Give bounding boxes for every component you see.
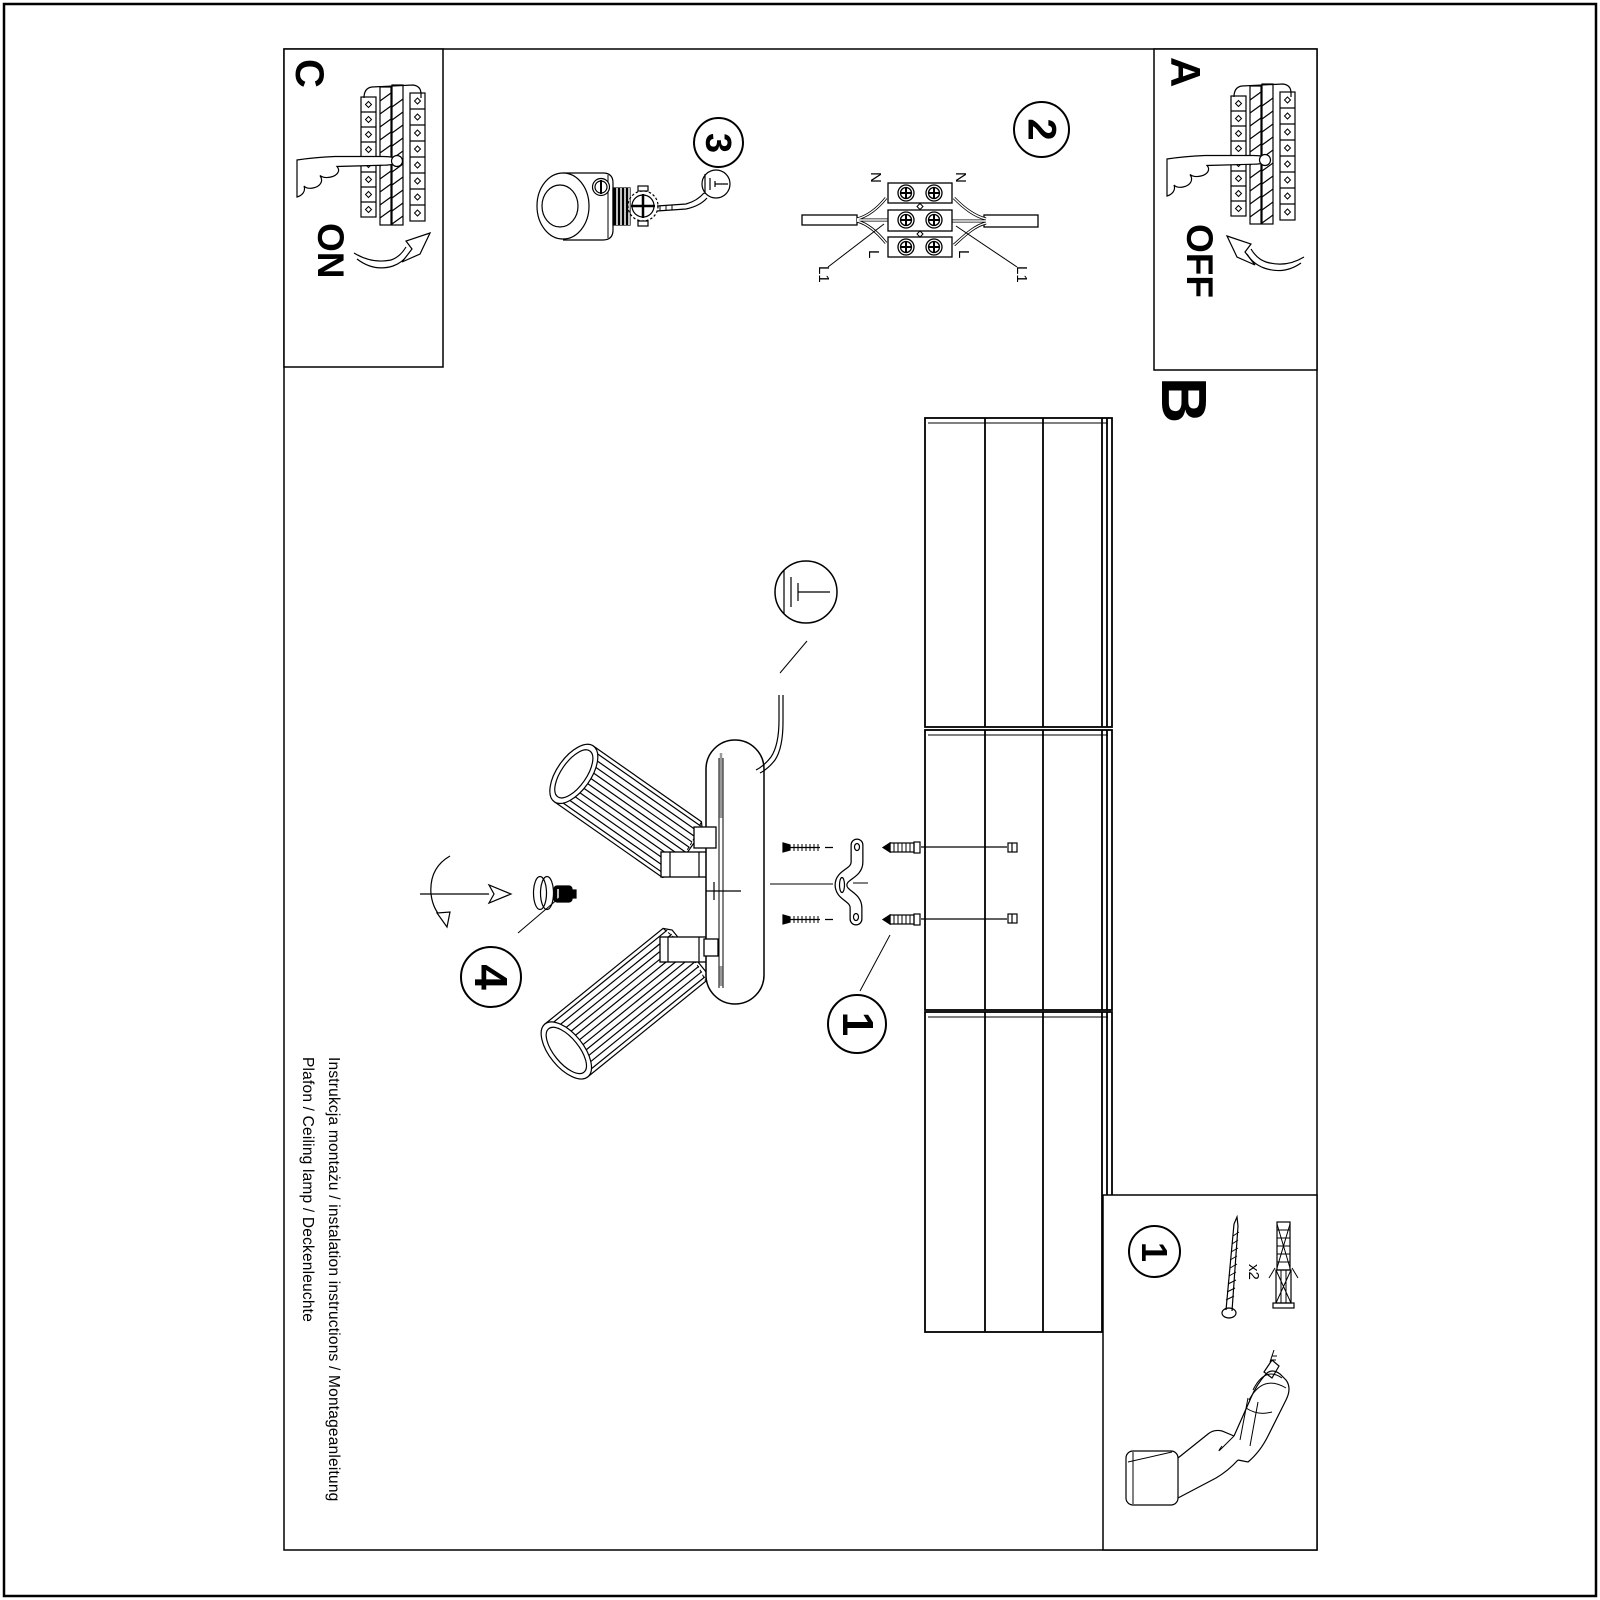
terminal-block-icon bbox=[888, 183, 952, 257]
footer-titles: Instrukcja montażu / instalation instruc… bbox=[294, 1057, 346, 1501]
terminal-l1-left: L1 bbox=[816, 266, 831, 283]
terminal-l1-right: L1 bbox=[1014, 266, 1029, 283]
step-circle-ground: 3 bbox=[693, 117, 744, 168]
panel-a-box bbox=[1154, 49, 1317, 370]
footer-line2: Plafon / Ceiling lamp / Deckenleuchte bbox=[294, 1057, 320, 1501]
terminal-n-right: N bbox=[953, 172, 968, 183]
terminal-l-left: L bbox=[866, 250, 881, 258]
socket-knob-lower bbox=[704, 939, 718, 956]
wall-anchor-top bbox=[883, 842, 920, 853]
panel-b-label: B bbox=[1152, 377, 1216, 423]
toggle-knob bbox=[1260, 155, 1271, 166]
switch-on-label: ON bbox=[312, 223, 349, 279]
panel-c-label: C bbox=[289, 59, 329, 88]
step-circle-shade: 4 bbox=[460, 946, 522, 1008]
footer-line1: Instrukcja montażu / instalation instruc… bbox=[320, 1057, 346, 1501]
shade-socket-lower bbox=[660, 937, 707, 962]
ceiling-canopy bbox=[706, 740, 764, 1004]
screws-qty-label: x2 bbox=[1246, 1264, 1261, 1280]
step-circle-mount: 1 bbox=[827, 994, 887, 1054]
switch-off-label: OFF bbox=[1181, 224, 1218, 298]
terminal-n-left: N bbox=[868, 172, 883, 183]
panel-a-label: A bbox=[1164, 57, 1206, 87]
step-circle-wiring: 2 bbox=[1013, 101, 1070, 158]
shade-socket-upper bbox=[661, 852, 707, 877]
toggle-knob bbox=[392, 156, 403, 167]
socket-knob-upper bbox=[694, 827, 716, 848]
wall-anchor-bottom bbox=[883, 914, 920, 925]
terminal-l-right: L bbox=[956, 250, 971, 258]
instruction-sheet: C ON A OFF B 2 3 4 1 1 N N L L L1 L1 x2 … bbox=[0, 0, 1600, 1600]
line-art-layer bbox=[0, 0, 1600, 1600]
parts-step-circle: 1 bbox=[1128, 1225, 1181, 1278]
